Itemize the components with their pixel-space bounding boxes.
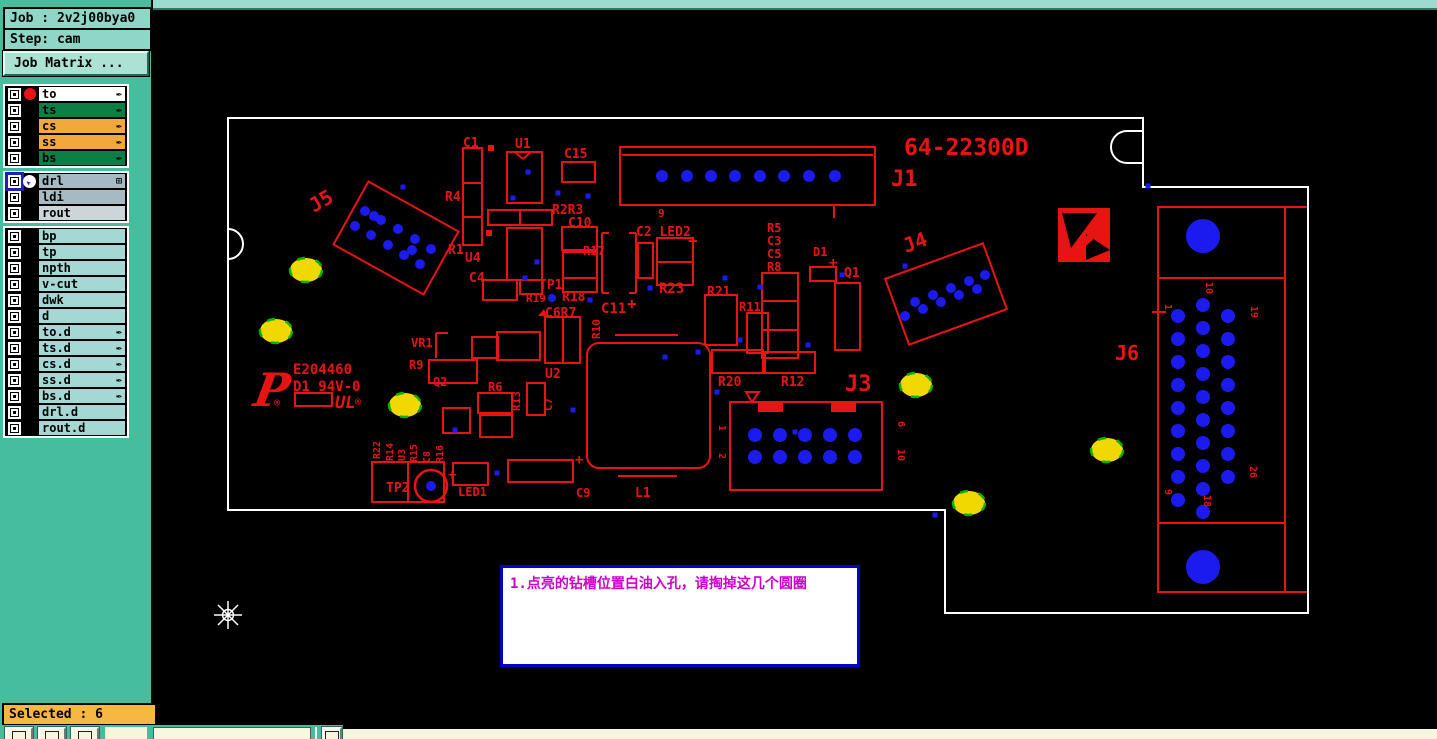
silk-rect[interactable] [497, 332, 540, 360]
via[interactable] [535, 260, 540, 265]
drill-hole[interactable] [748, 428, 762, 442]
toolbar-button-1[interactable] [5, 727, 33, 739]
silk-rect[interactable] [488, 210, 520, 225]
via[interactable] [495, 471, 500, 476]
layer-label-bs.d[interactable]: bs.d✒ [38, 388, 126, 404]
drill-hole[interactable] [1196, 298, 1210, 312]
highlighted-slot[interactable] [900, 373, 932, 397]
silk-text[interactable]: R1 [448, 243, 464, 258]
drill-hole[interactable] [1221, 470, 1235, 484]
drill-hole[interactable] [980, 270, 990, 280]
silk-line[interactable] [515, 152, 523, 159]
drill-hole[interactable] [705, 170, 717, 182]
silk-rect[interactable] [478, 393, 512, 413]
silk-text[interactable]: 1 [1162, 304, 1173, 310]
layer-cursor-icon: ➤ [21, 174, 38, 188]
toolbar-icon-3 [78, 731, 92, 739]
layer-indicator [21, 405, 38, 419]
layer-label-cs[interactable]: cs✒ [38, 118, 126, 134]
active-layer-dot [21, 87, 38, 101]
layer-checkbox-ss.d[interactable] [8, 374, 21, 387]
layer-label-cs.d[interactable]: cs.d✒ [38, 356, 126, 372]
layer-group: bptpnpthv-cutdwkdto.d✒ts.d✒cs.d✒ss.d✒bs.… [3, 226, 129, 438]
layer-label-tp[interactable]: tp [38, 244, 126, 260]
silk-rect[interactable] [408, 462, 444, 502]
silk-text[interactable]: J6 [1115, 341, 1139, 365]
via[interactable] [758, 285, 763, 290]
silk-rect[interactable] [705, 295, 737, 345]
layer-name: ss.d [42, 373, 71, 387]
silk-text[interactable]: R22 [372, 441, 383, 459]
silk-rect[interactable] [483, 280, 517, 300]
layer-label-npth[interactable]: npth [38, 260, 126, 276]
silk-text[interactable]: R12 [781, 375, 804, 390]
silk-rect[interactable] [638, 243, 653, 278]
layer-indicator [21, 206, 38, 220]
silk-text[interactable]: C4 [469, 271, 485, 286]
silk-text[interactable]: C11 [601, 301, 626, 317]
silk-text[interactable]: C10 [568, 216, 592, 231]
layer-checkbox-rout.d[interactable] [8, 422, 21, 435]
layer-indicator [21, 119, 38, 133]
layer-name: ss [42, 135, 56, 149]
drill-hole[interactable] [369, 211, 379, 221]
silk-text[interactable]: C3 [767, 234, 781, 248]
silk-text[interactable]: C5 [767, 247, 781, 261]
silk-text[interactable]: U2 [545, 367, 561, 382]
layer-row-drl.d: drl.d [5, 404, 127, 420]
highlighted-slot[interactable] [1091, 438, 1123, 462]
silk-rect[interactable] [730, 402, 882, 490]
toolbar-icon-2 [45, 731, 59, 739]
silk-text[interactable]: 19 [1248, 306, 1259, 318]
drill-hole[interactable] [798, 428, 812, 442]
layer-name: cs.d [42, 357, 71, 371]
silk-text[interactable]: 64-22300D [904, 135, 1029, 161]
drill-hole[interactable] [1196, 413, 1210, 427]
silk-rect[interactable] [334, 182, 459, 295]
drill-hole[interactable] [393, 224, 403, 234]
silk-text[interactable]: R16 [435, 445, 446, 463]
layer-checkbox-v-cut[interactable] [8, 278, 21, 291]
via[interactable] [806, 343, 811, 348]
layer-row-npth: npth [5, 260, 127, 276]
drill-hole[interactable] [1221, 332, 1235, 346]
drill-hole[interactable] [383, 240, 393, 250]
layer-label-ts.d[interactable]: ts.d✒ [38, 340, 126, 356]
layer-indicator [21, 103, 38, 117]
drill-hole[interactable] [900, 311, 910, 321]
layer-checkbox-bp[interactable] [8, 230, 21, 243]
board-notch[interactable] [228, 229, 243, 259]
layer-name: npth [42, 261, 71, 275]
silk-rect[interactable] [480, 415, 512, 437]
layer-checkbox-cs.d[interactable] [8, 358, 21, 371]
layer-indicator [21, 325, 38, 339]
silk-text[interactable]: L1 [635, 486, 651, 501]
silk-text[interactable]: E204460 [293, 362, 352, 378]
drill-hole[interactable] [1171, 401, 1185, 415]
drill-hole[interactable] [366, 230, 376, 240]
layer-label-ss[interactable]: ss✒ [38, 134, 126, 150]
drill-hole[interactable] [1171, 355, 1185, 369]
silk-rect[interactable] [453, 463, 488, 485]
layer-label-bp[interactable]: bp [38, 228, 126, 244]
silk-text[interactable]: + [448, 467, 456, 483]
registered-mark-icon: ® [274, 398, 281, 409]
drill-hole[interactable] [1221, 309, 1235, 323]
silk-text[interactable]: 2 [716, 453, 727, 459]
drill-hole[interactable] [823, 450, 837, 464]
layer-label-drl[interactable]: drl⊞ [38, 173, 126, 189]
layer-checkbox-to[interactable] [8, 88, 21, 101]
layer-label-ldi[interactable]: ldi [38, 189, 126, 205]
layer-label-to.d[interactable]: to.d✒ [38, 324, 126, 340]
silk-fill[interactable] [486, 230, 492, 236]
via[interactable] [933, 513, 938, 518]
silk-text[interactable]: R21 [707, 285, 731, 300]
via[interactable] [663, 355, 668, 360]
layer-label-drl.d[interactable]: drl.d [38, 404, 126, 420]
via[interactable] [723, 276, 728, 281]
layer-label-dwk[interactable]: dwk [38, 292, 126, 308]
drill-hole[interactable] [426, 244, 436, 254]
drill-hole[interactable] [1186, 219, 1220, 253]
toolbar-button-4[interactable] [322, 727, 342, 739]
drill-hole[interactable] [350, 221, 360, 231]
drill-hole[interactable] [729, 170, 741, 182]
silk-rect[interactable] [507, 152, 542, 203]
registered-mark-icon: ® [355, 397, 362, 408]
via[interactable] [1146, 184, 1151, 189]
highlighted-slot[interactable] [290, 258, 322, 282]
layer-checkbox-d[interactable] [8, 310, 21, 323]
drill-hole[interactable] [1196, 344, 1210, 358]
silk-text[interactable]: D1 94V-0 [293, 379, 360, 395]
silk-text[interactable]: U4 [465, 251, 481, 266]
layer-indicator [21, 293, 38, 307]
silk-text[interactable]: J4 [900, 227, 931, 258]
silk-rect[interactable] [472, 337, 498, 358]
layer-row-bs.d: bs.d✒ [5, 388, 127, 404]
drill-hole[interactable] [1171, 447, 1185, 461]
layer-indicator [21, 135, 38, 149]
layer-row-d: d [5, 308, 127, 324]
highlighted-slot[interactable] [953, 491, 985, 515]
drill-hole[interactable] [972, 284, 982, 294]
layer-row-rout: rout [5, 205, 127, 221]
layer-checkbox-ts[interactable] [8, 104, 21, 117]
via[interactable] [903, 264, 908, 269]
silk-text[interactable]: R23 [659, 281, 684, 297]
board-outline[interactable] [228, 118, 1308, 613]
drill-hole[interactable] [848, 450, 862, 464]
drill-hole[interactable] [360, 206, 370, 216]
via[interactable] [648, 286, 653, 291]
layer-name: tp [42, 245, 56, 259]
via[interactable] [453, 428, 458, 433]
drill-hole[interactable] [928, 290, 938, 300]
silk-rect[interactable] [587, 343, 710, 468]
silk-text[interactable]: U3 [397, 449, 408, 461]
via[interactable] [401, 185, 406, 190]
drill-hole[interactable] [1196, 321, 1210, 335]
highlighted-slot[interactable] [260, 319, 292, 343]
toolbar-button-3[interactable] [71, 727, 99, 739]
silk-rect[interactable] [545, 317, 563, 363]
layer-checkbox-npth[interactable] [8, 262, 21, 275]
drill-hole[interactable] [754, 170, 766, 182]
layer-checkbox-ss[interactable] [8, 136, 21, 149]
silk-rect[interactable] [747, 313, 768, 353]
layer-name: drl.d [42, 405, 78, 419]
silk-text[interactable]: C6R7 [545, 306, 576, 321]
silk-text[interactable]: 6 [895, 421, 906, 427]
layer-row-dwk: dwk [5, 292, 127, 308]
highlighted-slot[interactable] [389, 393, 421, 417]
silk-text[interactable]: + [688, 231, 698, 250]
silk-text[interactable]: 10 [1203, 282, 1214, 294]
drill-hole[interactable] [407, 245, 417, 255]
silk-text[interactable]: C1 [463, 136, 479, 151]
drill-hole[interactable] [1196, 505, 1210, 519]
drill-hole[interactable] [748, 450, 762, 464]
drill-hole[interactable] [1186, 550, 1220, 584]
silk-text[interactable]: R14 [385, 443, 396, 461]
layer-label-v-cut[interactable]: v-cut [38, 276, 126, 292]
layer-row-cs: cs✒ [5, 118, 127, 134]
silk-text[interactable]: 26 [1247, 466, 1258, 478]
layer-label-rout[interactable]: rout [38, 205, 126, 221]
layer-checkbox-ldi[interactable] [8, 191, 21, 204]
silk-text[interactable]: C8 [422, 451, 433, 463]
drill-hole[interactable] [1221, 424, 1235, 438]
job-label: Job : 2v2j00bya0 [5, 9, 150, 30]
silk-text[interactable]: TP1 [539, 278, 563, 293]
silk-text[interactable]: J1 [891, 167, 918, 192]
silk-text[interactable]: R9 [409, 358, 423, 372]
silk-text[interactable]: Q1 [844, 266, 860, 281]
drill-hole[interactable] [1221, 401, 1235, 415]
silk-rect[interactable] [520, 210, 552, 225]
silk-text[interactable]: C9 [576, 486, 590, 500]
drill-hole[interactable] [1221, 355, 1235, 369]
via[interactable] [588, 298, 593, 303]
silk-text[interactable]: 9 [1162, 489, 1173, 495]
via[interactable] [696, 350, 701, 355]
layer-indicator [21, 190, 38, 204]
silk-text[interactable]: R8 [767, 260, 781, 274]
silk-text[interactable]: R18 [562, 290, 586, 305]
layer-label-ts[interactable]: ts✒ [38, 102, 126, 118]
pen-icon: ✒ [116, 89, 122, 100]
silk-rect[interactable] [835, 283, 860, 350]
layer-group: to✒ts✒cs✒ss✒bs✒ [3, 84, 129, 168]
via[interactable] [523, 276, 528, 281]
silk-text[interactable]: Q2 [433, 375, 447, 389]
note-box: 1.点亮的钻槽位置白油入孔，请掏掉这几个圆圈 [500, 565, 860, 667]
silk-text[interactable]: R4 [445, 190, 461, 205]
silk-text[interactable]: U1 [515, 137, 531, 152]
layer-name: drl [42, 174, 64, 188]
via[interactable] [556, 191, 561, 196]
drill-hole[interactable] [656, 170, 668, 182]
drill-hole[interactable] [410, 234, 420, 244]
silk-rect[interactable] [508, 460, 573, 482]
silk-text[interactable]: R11 [739, 300, 761, 314]
silk-fill[interactable] [831, 403, 856, 412]
drill-hole[interactable] [848, 428, 862, 442]
layer-label-bs[interactable]: bs✒ [38, 150, 126, 166]
layer-indicator [21, 277, 38, 291]
silk-text[interactable]: R13 [510, 391, 523, 411]
silk-rect[interactable] [507, 228, 542, 280]
selected-count: Selected : 6 [2, 703, 157, 726]
via[interactable] [793, 430, 798, 435]
drill-hole[interactable] [829, 170, 841, 182]
drill-hole[interactable] [954, 290, 964, 300]
drill-hole[interactable] [1171, 378, 1185, 392]
drill-hole[interactable] [1171, 470, 1185, 484]
drill-hole[interactable] [773, 450, 787, 464]
layer-label-ss.d[interactable]: ss.d✒ [38, 372, 126, 388]
drill-hole[interactable] [415, 259, 425, 269]
drill-hole[interactable] [964, 276, 974, 286]
drill-hole[interactable] [1196, 367, 1210, 381]
silk-rect[interactable] [1158, 207, 1285, 592]
layer-label-rout.d[interactable]: rout.d [38, 420, 126, 436]
silk-text[interactable]: R5 [767, 221, 781, 235]
drill-hole[interactable] [548, 294, 556, 302]
pen-icon: ✒ [116, 359, 122, 370]
drill-hole[interactable] [773, 428, 787, 442]
drill-hole[interactable] [1196, 459, 1210, 473]
layer-checkbox-tp[interactable] [8, 246, 21, 259]
drill-hole[interactable] [946, 283, 956, 293]
layer-checkbox-drl[interactable] [8, 175, 21, 188]
toolbar-button-2[interactable] [38, 727, 66, 739]
drill-hole[interactable] [1221, 378, 1235, 392]
silk-fill[interactable] [758, 403, 783, 412]
silk-text[interactable]: C15 [564, 147, 587, 162]
silk-rect[interactable] [885, 243, 1007, 344]
silk-line[interactable] [523, 152, 531, 159]
silk-text[interactable]: C2 LED2 [636, 225, 691, 240]
silk-rect[interactable] [762, 273, 798, 301]
drill-hole[interactable] [1221, 447, 1235, 461]
drill-hole[interactable] [1196, 390, 1210, 404]
via[interactable] [571, 408, 576, 413]
silk-rect[interactable] [562, 162, 595, 182]
drill-hole[interactable] [803, 170, 815, 182]
silk-text[interactable]: + [627, 294, 637, 313]
via[interactable] [586, 194, 591, 199]
layer-row-drl: ➤drl⊞ [5, 173, 127, 189]
layer-row-to.d: to.d✒ [5, 324, 127, 340]
layer-indicator [21, 341, 38, 355]
via[interactable] [715, 390, 720, 395]
layer-label-to[interactable]: to✒ [38, 86, 126, 102]
silk-text[interactable]: R10 [590, 319, 603, 339]
silk-text[interactable]: R15 [409, 444, 420, 462]
command-input[interactable] [153, 727, 311, 739]
silk-text[interactable]: 18 [1201, 495, 1212, 507]
silk-rect[interactable] [463, 148, 482, 183]
drill-hole[interactable] [681, 170, 693, 182]
drill-hole[interactable] [1171, 309, 1185, 323]
silk-text[interactable]: R6 [488, 380, 502, 394]
layer-label-d[interactable]: d [38, 308, 126, 324]
via[interactable] [511, 196, 516, 201]
board-notch[interactable] [1111, 131, 1143, 163]
layer-row-rout.d: rout.d [5, 420, 127, 436]
silk-text[interactable]: TP2 [386, 481, 409, 496]
drill-hole[interactable] [918, 304, 928, 314]
layer-checkbox-drl.d[interactable] [8, 406, 21, 419]
toolbar-spacer [105, 727, 147, 739]
drill-hole[interactable] [1196, 482, 1210, 496]
silk-text[interactable]: VR1 [411, 336, 433, 350]
drill-hole[interactable] [1196, 436, 1210, 450]
drill-hole[interactable] [1171, 493, 1185, 507]
silk-text[interactable]: C7 [542, 398, 555, 411]
silk-text[interactable]: R17 [583, 244, 605, 258]
layer-name: bs.d [42, 389, 71, 403]
layer-checkbox-dwk[interactable] [8, 294, 21, 307]
layer-indicator [21, 245, 38, 259]
drill-hole[interactable] [798, 450, 812, 464]
toolbar-divider [315, 727, 317, 739]
silk-text[interactable]: 9 [658, 207, 665, 220]
drill-hole[interactable] [778, 170, 790, 182]
silk-text[interactable]: R20 [718, 375, 742, 390]
silk-triangle[interactable] [746, 392, 759, 402]
drill-hole[interactable] [426, 481, 436, 491]
job-matrix-button[interactable]: Job Matrix ... [3, 51, 149, 76]
layer-row-to: to✒ [5, 86, 127, 102]
drill-hole[interactable] [1171, 332, 1185, 346]
silk-rect[interactable] [765, 352, 815, 373]
silk-text[interactable]: J5 [305, 184, 338, 217]
silk-rect[interactable] [463, 183, 482, 217]
silk-fill[interactable] [488, 145, 494, 151]
drill-hole[interactable] [910, 297, 920, 307]
silk-text[interactable]: 1 [716, 425, 727, 431]
layer-name: v-cut [42, 277, 78, 291]
via[interactable] [738, 338, 743, 343]
layer-indicator [21, 357, 38, 371]
silk-text[interactable]: J3 [845, 372, 872, 397]
silk-text[interactable]: 10 [895, 449, 906, 461]
via[interactable] [526, 170, 531, 175]
layer-checkbox-ts.d[interactable] [8, 342, 21, 355]
silk-text[interactable]: + [829, 255, 837, 271]
layer-checkbox-to.d[interactable] [8, 326, 21, 339]
layer-checkbox-bs[interactable] [8, 152, 21, 165]
silk-text[interactable]: LED1 [458, 485, 487, 499]
silk-rect[interactable] [563, 317, 580, 363]
silk-rect[interactable] [463, 217, 482, 245]
drill-hole[interactable] [1171, 424, 1185, 438]
silk-text[interactable]: + [575, 452, 583, 468]
silk-text[interactable]: R19 [526, 292, 546, 305]
layer-checkbox-bs.d[interactable] [8, 390, 21, 403]
layer-checkbox-cs[interactable] [8, 120, 21, 133]
silk-text[interactable]: D1 [813, 245, 827, 259]
layer-checkbox-rout[interactable] [8, 207, 21, 220]
drill-hole[interactable] [823, 428, 837, 442]
drill-hole[interactable] [936, 297, 946, 307]
